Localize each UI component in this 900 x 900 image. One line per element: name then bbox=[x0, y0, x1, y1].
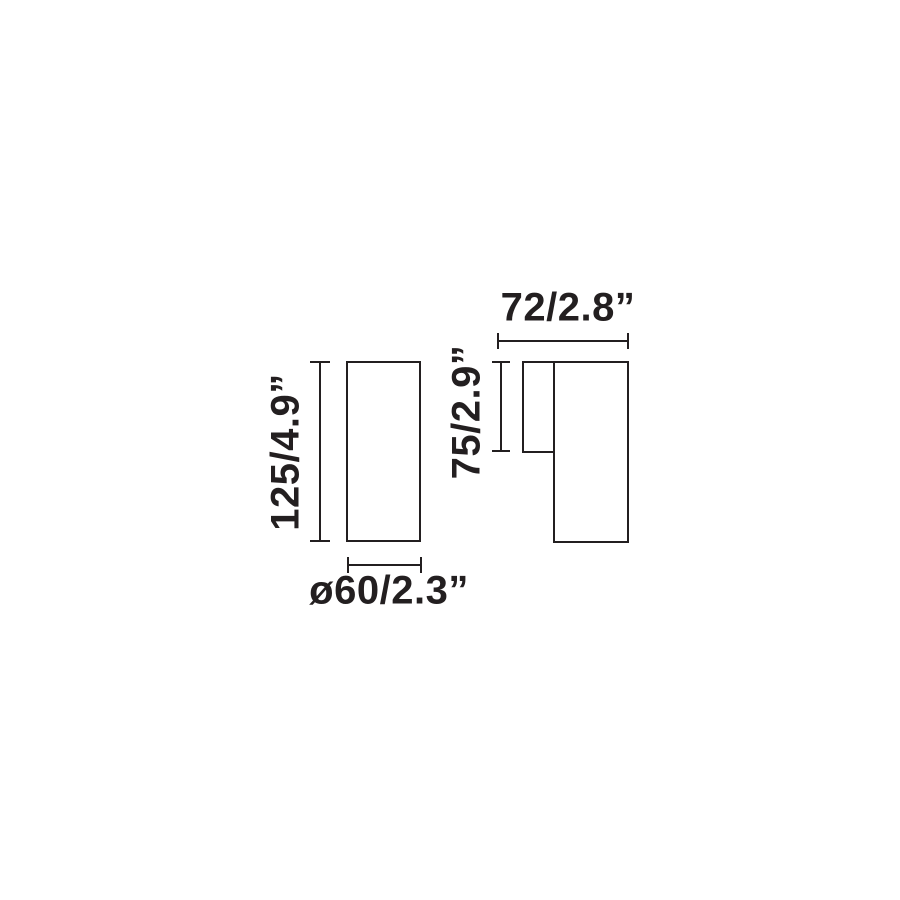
dimension-line bbox=[348, 564, 422, 566]
front-view-outline bbox=[346, 361, 421, 542]
dimension-tick bbox=[627, 333, 629, 349]
dimension-line bbox=[498, 340, 628, 342]
dimension-tick bbox=[492, 361, 510, 363]
dimension-tick bbox=[310, 540, 330, 542]
diameter-dimension-label: ø60/2.3” bbox=[309, 569, 469, 614]
body-height-dimension-label: 75/2.9” bbox=[445, 345, 490, 480]
dimension-diagram: 125/4.9” ø60/2.3” 72/2.8” 75/2.9” bbox=[0, 0, 900, 900]
height-dimension-label: 125/4.9” bbox=[264, 373, 309, 530]
dimension-tick bbox=[497, 333, 499, 349]
side-view-mount-outline bbox=[522, 361, 555, 453]
dimension-tick bbox=[310, 361, 330, 363]
dimension-tick bbox=[492, 450, 510, 452]
dimension-line bbox=[319, 362, 321, 541]
depth-dimension-label: 72/2.8” bbox=[501, 286, 636, 331]
side-view-body-outline bbox=[553, 361, 629, 543]
dimension-line bbox=[500, 362, 502, 452]
